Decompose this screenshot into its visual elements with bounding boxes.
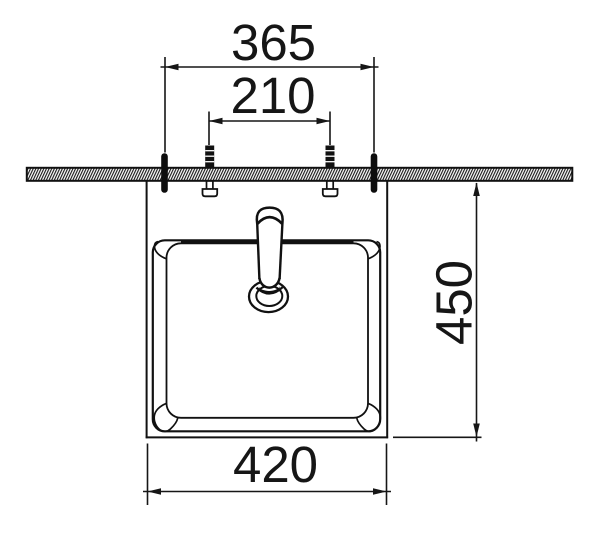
svg-text:210: 210 xyxy=(230,67,315,124)
svg-text:365: 365 xyxy=(231,14,316,71)
svg-text:420: 420 xyxy=(233,436,318,493)
svg-text:450: 450 xyxy=(426,260,483,345)
